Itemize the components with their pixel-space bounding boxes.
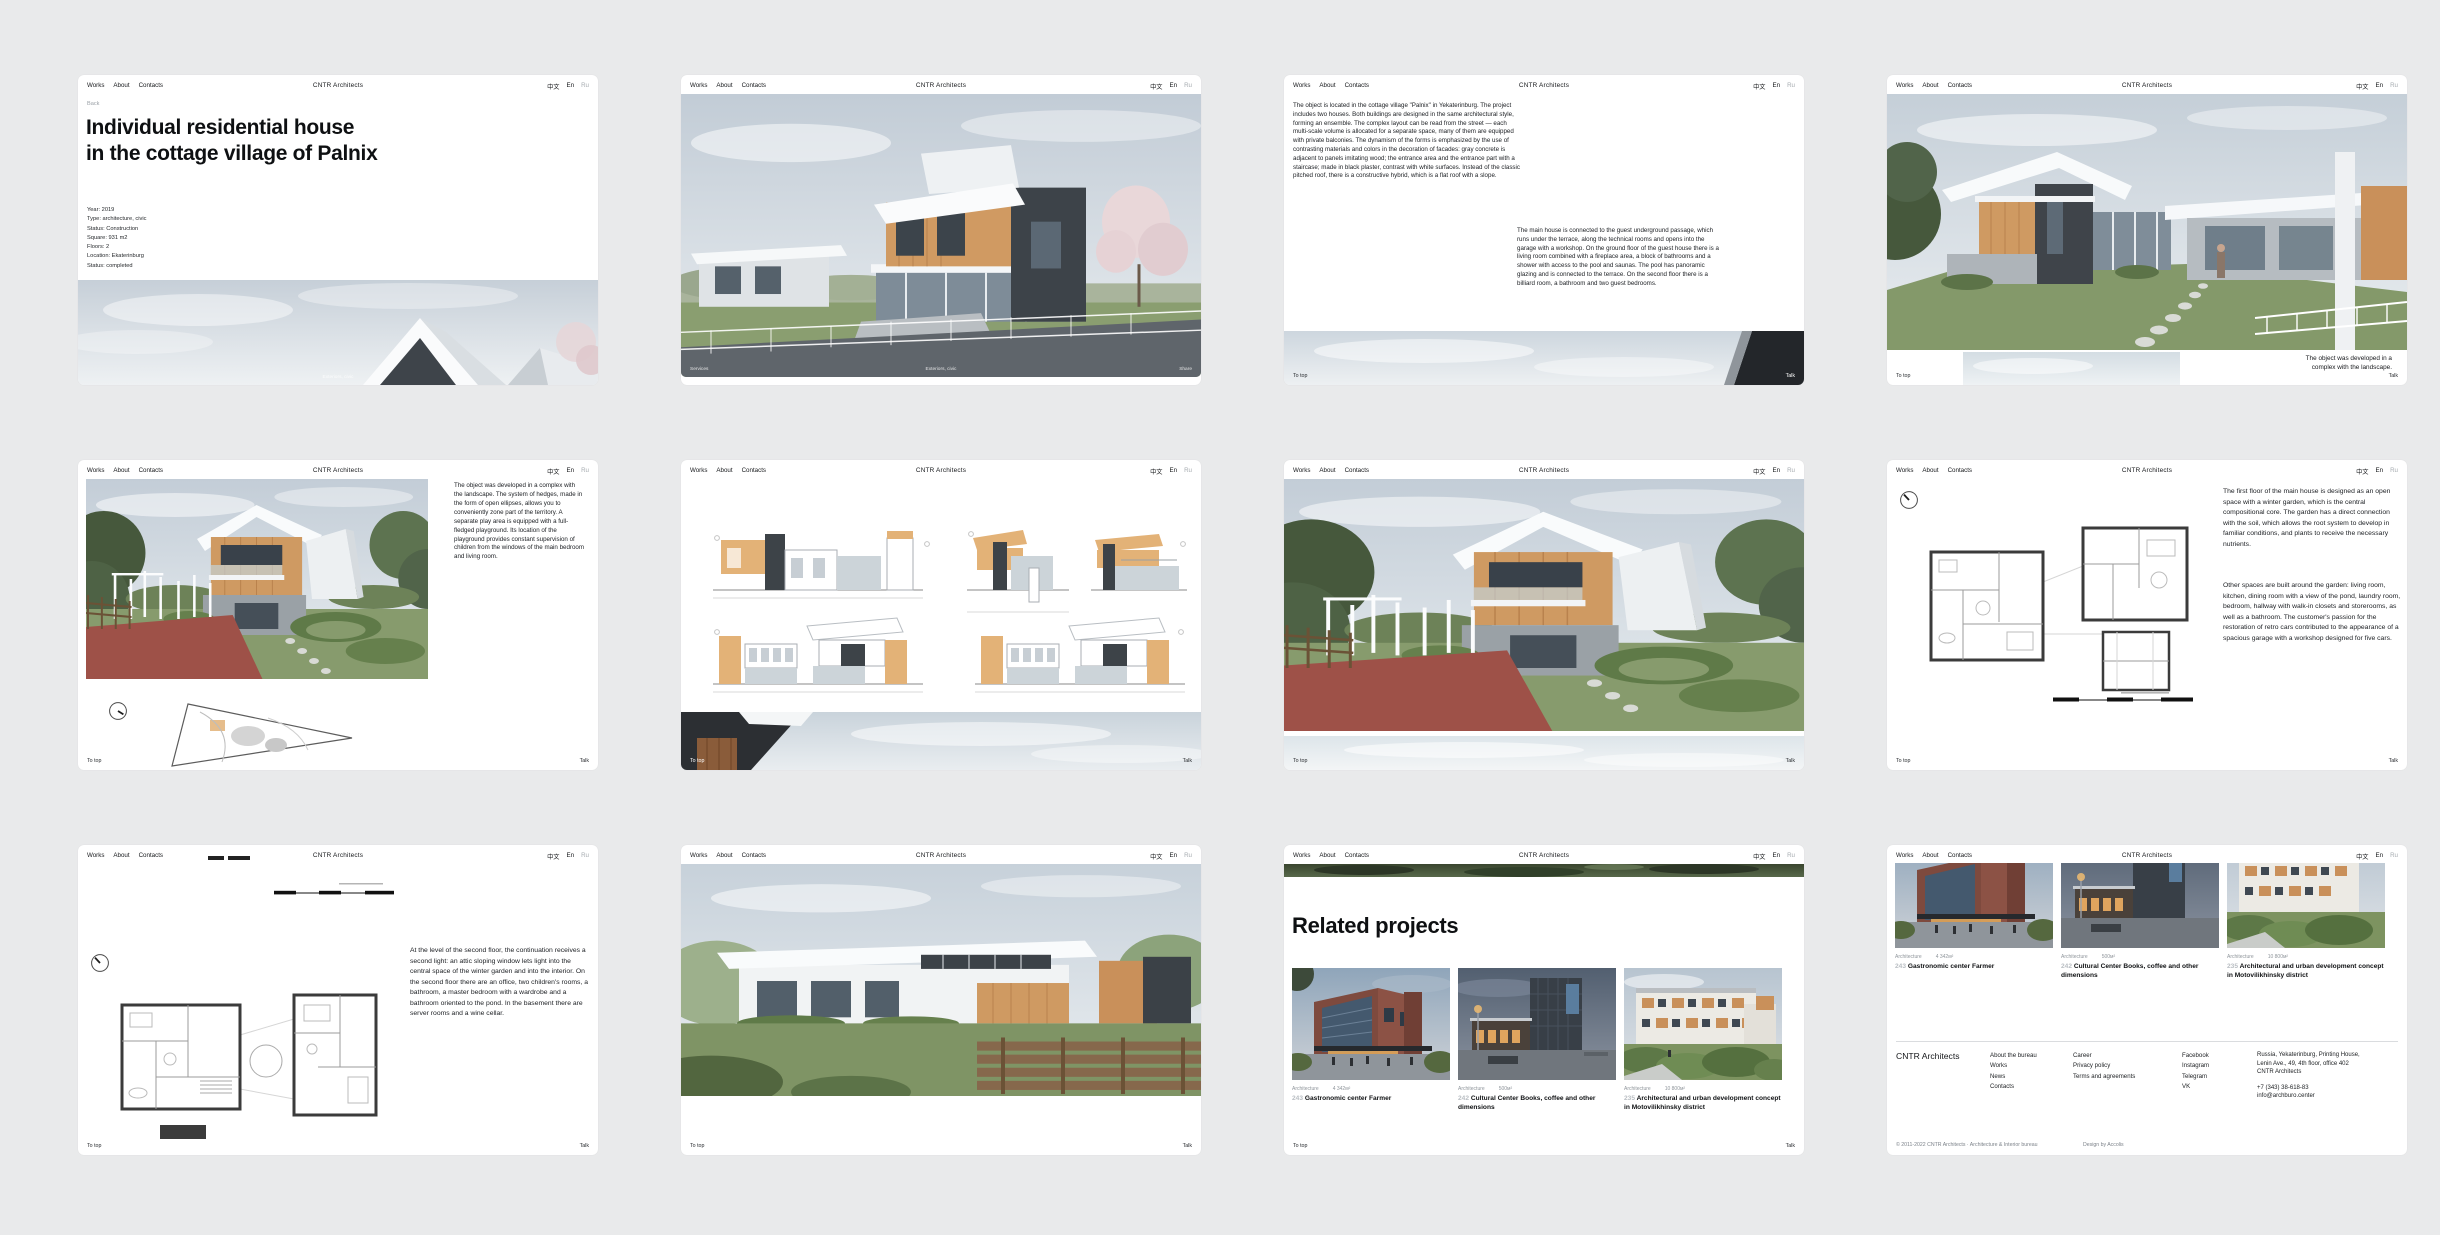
- meta-type: Type: architecture, civic: [87, 215, 146, 224]
- nav-link-works[interactable]: Works: [690, 82, 707, 89]
- lang-option-2[interactable]: Ru: [2390, 467, 2398, 476]
- lang-option-0[interactable]: 中文: [547, 82, 559, 91]
- site-nav: WorksAboutContactsCNTR Architects中文EnRu: [681, 845, 1201, 865]
- screen-garden-photo: WorksAboutContactsCNTR Architects中文EnRu: [681, 845, 1201, 1155]
- footer-link-terms[interactable]: Terms and agreements: [2073, 1072, 2135, 1082]
- to-top-link[interactable]: To top: [690, 758, 704, 764]
- to-top-link[interactable]: To top: [1293, 1143, 1307, 1149]
- site-nav: WorksAboutContactsCNTR Architects中文EnRu: [1284, 460, 1804, 480]
- meta-square: Square: 931 m2: [87, 234, 146, 243]
- lang-option-1[interactable]: En: [2376, 852, 2384, 861]
- nav-link-works[interactable]: Works: [1293, 82, 1310, 89]
- pagebar: To topTalk: [1293, 1143, 1795, 1149]
- talk-link[interactable]: Talk: [2389, 758, 2398, 764]
- address-line: CNTR Architects: [2257, 1068, 2399, 1077]
- talk-link[interactable]: Talk: [2389, 373, 2398, 379]
- card-number: 243: [1895, 963, 1906, 970]
- nav-links: WorksAboutContacts: [1293, 82, 1369, 89]
- related-card-meta: Architecture 500м²: [2061, 954, 2219, 960]
- meta-location: Location: Ekaterinburg: [87, 252, 146, 261]
- related-card-meta: Architecture 500м²: [1458, 1086, 1616, 1092]
- related-card-image: [2061, 863, 2219, 948]
- card-number: 242: [2061, 963, 2072, 970]
- nav-link-about[interactable]: About: [1319, 852, 1335, 859]
- card-area: 10 800м²: [2268, 954, 2288, 960]
- garden-image: [681, 864, 1201, 1096]
- courtyard-image: [1887, 94, 2407, 350]
- pagebar: To topTalk: [690, 758, 1192, 764]
- text-block-location: The object is located in the cottage vil…: [1293, 102, 1523, 181]
- talk-link[interactable]: Talk: [1786, 758, 1795, 764]
- language-switcher: 中文EnRu: [547, 852, 589, 861]
- card-category: Architecture: [2061, 954, 2088, 960]
- footer-social-column: Facebook Instagram Telegram VK: [2182, 1051, 2209, 1093]
- language-switcher: 中文EnRu: [1150, 82, 1192, 91]
- image-caption-overlay: Exteriors, civic: [926, 367, 957, 372]
- footer-phone[interactable]: +7 (343) 38-618-83: [2257, 1084, 2399, 1093]
- site-nav: WorksAboutContactsCNTR Architects中文EnRu: [78, 845, 598, 865]
- language-switcher: 中文EnRu: [547, 467, 589, 476]
- image-strip-trees: [1284, 864, 1804, 877]
- lang-option-0[interactable]: 中文: [1753, 467, 1765, 476]
- language-switcher: 中文EnRu: [1753, 852, 1795, 861]
- screen-second-floor-plan: WorksAboutContactsCNTR Architects中文EnRu: [78, 845, 598, 1155]
- language-switcher: 中文EnRu: [547, 82, 589, 91]
- to-top-link[interactable]: To top: [1896, 373, 1910, 379]
- lang-option-2[interactable]: Ru: [1787, 852, 1795, 861]
- nav-link-contacts[interactable]: Contacts: [1948, 82, 1972, 89]
- card-category: Architecture: [1895, 954, 1922, 960]
- lang-option-1[interactable]: En: [1773, 467, 1781, 476]
- card-category: Architecture: [1624, 1086, 1651, 1092]
- lang-option-2[interactable]: Ru: [1184, 467, 1192, 476]
- nav-link-works[interactable]: Works: [1896, 82, 1913, 89]
- lang-option-0[interactable]: 中文: [2356, 467, 2368, 476]
- related-card-meta: Architecture 10 800м²: [1624, 1086, 1782, 1092]
- scale-bar: [273, 881, 395, 899]
- card-category: Architecture: [1458, 1086, 1485, 1092]
- card-title-text: Cultural Center Books, coffee and other …: [2061, 963, 2198, 979]
- image-overlay-left[interactable]: Services: [690, 367, 708, 372]
- floor-plan-2-drawing: [108, 977, 398, 1147]
- lang-option-2[interactable]: Ru: [1184, 852, 1192, 861]
- nav-link-works[interactable]: Works: [1293, 467, 1310, 474]
- footer-nav-column: About the bureau Works News Contacts: [1990, 1051, 2037, 1093]
- card-area: 4 342м²: [1936, 954, 1954, 960]
- site-nav: WorksAboutContactsCNTR Architects中文EnRu: [78, 75, 598, 95]
- project-meta-list: Year: 2019 Type: architecture, civic Sta…: [87, 206, 146, 271]
- nav-link-contacts[interactable]: Contacts: [139, 467, 163, 474]
- site-nav: WorksAboutContactsCNTR Architects中文EnRu: [681, 460, 1201, 480]
- related-card-motovilikhinsky[interactable]: Architecture 10 800м² 235 Architectural …: [2227, 863, 2385, 981]
- lang-option-2[interactable]: Ru: [581, 82, 589, 91]
- image-caption: The object was developed in a complex wi…: [2284, 354, 2392, 372]
- nav-link-contacts[interactable]: Contacts: [1948, 852, 1972, 859]
- lang-option-0[interactable]: 中文: [1150, 467, 1162, 476]
- lang-option-0[interactable]: 中文: [547, 467, 559, 476]
- nav-links: WorksAboutContacts: [1896, 467, 1972, 474]
- screen-related-projects: WorksAboutContactsCNTR Architects中文EnRu …: [1284, 845, 1804, 1155]
- nav-link-contacts[interactable]: Contacts: [742, 82, 766, 89]
- project-title-line1: Individual residential house: [86, 115, 377, 141]
- nav-links: WorksAboutContacts: [690, 467, 766, 474]
- nav-link-about[interactable]: About: [1922, 852, 1938, 859]
- related-card-title[interactable]: 235 Architectural and urban development …: [1624, 1095, 1782, 1113]
- nav-links: WorksAboutContacts: [87, 852, 163, 859]
- footer-link-facebook[interactable]: Facebook: [2182, 1051, 2209, 1061]
- nav-link-works[interactable]: Works: [87, 467, 104, 474]
- card-number: 243: [1292, 1095, 1303, 1102]
- back-link[interactable]: Back: [87, 101, 99, 107]
- lang-option-1[interactable]: En: [1170, 852, 1178, 861]
- text-block-first-floor-2: Other spaces are built around the garden…: [2223, 581, 2401, 644]
- card-area: 500м²: [2102, 954, 2115, 960]
- footer-link-about[interactable]: About the bureau: [1990, 1051, 2037, 1061]
- site-nav: WorksAboutContactsCNTR Architects中文EnRu: [1887, 75, 2407, 95]
- nav-link-about[interactable]: About: [113, 82, 129, 89]
- language-switcher: 中文EnRu: [1150, 852, 1192, 861]
- text-block-first-floor-1: The first floor of the main house is des…: [2223, 487, 2401, 550]
- lang-option-2[interactable]: Ru: [581, 467, 589, 476]
- card-title-text: Cultural Center Books, coffee and other …: [1458, 1095, 1595, 1111]
- lang-option-0[interactable]: 中文: [547, 852, 559, 861]
- pagebar: To topTalk: [87, 758, 589, 764]
- related-card-meta: Architecture 4 342м²: [1292, 1086, 1450, 1092]
- playground-image: [86, 479, 428, 679]
- footer-link-telegram[interactable]: Telegram: [2182, 1072, 2209, 1082]
- footer-legal-column: Career Privacy policy Terms and agreemen…: [2073, 1051, 2135, 1082]
- north-arrow-icon: [90, 953, 110, 973]
- next-image-sliver: [1963, 352, 2180, 385]
- screen-description-text: WorksAboutContactsCNTR Architects中文EnRu …: [1284, 75, 1804, 385]
- text-block-guest-house: The main house is connected to the guest…: [1517, 227, 1725, 289]
- language-switcher: 中文EnRu: [2356, 82, 2398, 91]
- hero-image-top: Exteriors, civic: [78, 280, 598, 385]
- nav-link-works[interactable]: Works: [87, 82, 104, 89]
- meta-floors: Floors: 2: [87, 243, 146, 252]
- card-number: 235: [2227, 963, 2238, 970]
- image-caption-overlay: Exteriors, civic: [323, 375, 354, 380]
- footer-divider: [1896, 1041, 2398, 1042]
- pagebar: To topTalk: [1896, 758, 2398, 764]
- nav-link-contacts[interactable]: Contacts: [742, 467, 766, 474]
- nav-links: WorksAboutContacts: [87, 82, 163, 89]
- related-card-image: [1895, 863, 2053, 948]
- card-title-text: Architectural and urban development conc…: [1624, 1095, 1781, 1111]
- related-card-image: [1292, 968, 1450, 1080]
- to-top-link[interactable]: To top: [87, 1143, 101, 1149]
- footer-brand[interactable]: CNTR Architects: [1896, 1051, 1960, 1061]
- related-card-title[interactable]: 242 Cultural Center Books, coffee and ot…: [2061, 963, 2219, 981]
- share-link[interactable]: Share: [1179, 367, 1192, 372]
- related-card-title[interactable]: 243 Gastronomic center Farmer: [1895, 963, 2053, 972]
- lang-option-0[interactable]: 中文: [1150, 852, 1162, 861]
- to-top-link[interactable]: To top: [1293, 758, 1307, 764]
- lang-option-2[interactable]: Ru: [1787, 467, 1795, 476]
- lang-option-0[interactable]: 中文: [1753, 82, 1765, 91]
- nav-link-works[interactable]: Works: [1293, 852, 1310, 859]
- lang-option-2[interactable]: Ru: [2390, 82, 2398, 91]
- nav-link-contacts[interactable]: Contacts: [139, 852, 163, 859]
- nav-links: WorksAboutContacts: [690, 82, 766, 89]
- card-category: Architecture: [1292, 1086, 1319, 1092]
- nav-links: WorksAboutContacts: [1293, 852, 1369, 859]
- footer-link-news[interactable]: News: [1990, 1072, 2037, 1082]
- language-switcher: 中文EnRu: [2356, 852, 2398, 861]
- meta-status-2: Status: completed: [87, 262, 146, 271]
- lang-option-1[interactable]: En: [1773, 82, 1781, 91]
- nav-link-about[interactable]: About: [113, 467, 129, 474]
- language-switcher: 中文EnRu: [1753, 467, 1795, 476]
- meta-year: Year: 2019: [87, 206, 146, 215]
- to-top-link[interactable]: To top: [87, 758, 101, 764]
- nav-link-about[interactable]: About: [1922, 82, 1938, 89]
- to-top-link[interactable]: To top: [1896, 758, 1910, 764]
- nav-link-about[interactable]: About: [1922, 467, 1938, 474]
- nav-link-about[interactable]: About: [1319, 82, 1335, 89]
- nav-link-works[interactable]: Works: [690, 852, 707, 859]
- nav-link-about[interactable]: About: [716, 82, 732, 89]
- pagebar: To topTalk: [1896, 373, 2398, 379]
- screen-site-footer: WorksAboutContactsCNTR Architects中文EnRu …: [1887, 845, 2407, 1155]
- footer-address: Russia, Yekaterinburg, Printing House, L…: [2257, 1051, 2399, 1101]
- lang-option-2[interactable]: Ru: [1184, 82, 1192, 91]
- nav-link-contacts[interactable]: Contacts: [1345, 852, 1369, 859]
- language-switcher: 中文EnRu: [1150, 467, 1192, 476]
- footer-link-works[interactable]: Works: [1990, 1061, 2037, 1071]
- talk-link[interactable]: Talk: [580, 1143, 589, 1149]
- playground-image-wide: [1284, 479, 1804, 731]
- talk-link[interactable]: Talk: [580, 758, 589, 764]
- footer-link-instagram[interactable]: Instagram: [2182, 1061, 2209, 1071]
- nav-link-works[interactable]: Works: [690, 467, 707, 474]
- north-arrow-icon: [108, 701, 128, 721]
- card-area: 500м²: [1499, 1086, 1512, 1092]
- footer-link-privacy[interactable]: Privacy policy: [2073, 1061, 2135, 1071]
- nav-links: WorksAboutContacts: [1896, 82, 1972, 89]
- north-arrow-icon: [1899, 490, 1919, 510]
- lang-option-0[interactable]: 中文: [2356, 82, 2368, 91]
- footer-link-vk[interactable]: VK: [2182, 1082, 2209, 1092]
- site-nav: WorksAboutContactsCNTR Architects中文EnRu: [681, 75, 1201, 95]
- project-title: Individual residential house in the cott…: [86, 115, 377, 168]
- pagebar: To topTalk: [1293, 373, 1795, 379]
- nav-links: WorksAboutContacts: [1293, 467, 1369, 474]
- address-line: Lenin Ave., 49, 4th floor, office 402: [2257, 1060, 2399, 1069]
- nav-link-contacts[interactable]: Contacts: [139, 82, 163, 89]
- card-number: 235: [1624, 1095, 1635, 1102]
- footer-copyright: © 2011-2022 CNTR Architects · Architectu…: [1896, 1142, 2038, 1148]
- related-card-farmer[interactable]: Architecture 4 342м² 243 Gastronomic cen…: [1895, 863, 2053, 972]
- pagebar: To topTalk: [87, 1143, 589, 1149]
- site-nav: WorksAboutContactsCNTR Architects中文EnRu: [1284, 75, 1804, 95]
- to-top-link[interactable]: To top: [1293, 373, 1307, 379]
- related-card-books[interactable]: Architecture 500м² 242 Cultural Center B…: [1458, 968, 1616, 1113]
- lang-option-1[interactable]: En: [2376, 467, 2384, 476]
- nav-link-works[interactable]: Works: [1896, 852, 1913, 859]
- lang-option-1[interactable]: En: [1170, 467, 1178, 476]
- nav-link-contacts[interactable]: Contacts: [1345, 467, 1369, 474]
- footer-link-contacts[interactable]: Contacts: [1990, 1082, 2037, 1092]
- nav-link-about[interactable]: About: [716, 467, 732, 474]
- card-area: 10 800м²: [1665, 1086, 1685, 1092]
- nav-link-works[interactable]: Works: [1896, 467, 1913, 474]
- screen-first-floor-plan: WorksAboutContactsCNTR Architects中文EnRu: [1887, 460, 2407, 770]
- lang-option-2[interactable]: Ru: [581, 852, 589, 861]
- lang-option-1[interactable]: En: [1773, 852, 1781, 861]
- lang-option-2[interactable]: Ru: [1787, 82, 1795, 91]
- site-nav: WorksAboutContactsCNTR Architects中文EnRu: [78, 460, 598, 480]
- project-title-line2: in the cottage village of Palnix: [86, 141, 377, 167]
- nav-links: WorksAboutContacts: [1896, 852, 1972, 859]
- language-switcher: 中文EnRu: [2356, 467, 2398, 476]
- nav-link-about[interactable]: About: [1319, 467, 1335, 474]
- card-title-text: Architectural and urban development conc…: [2227, 963, 2384, 979]
- screen-landscape-text: WorksAboutContactsCNTR Architects中文EnRu: [78, 460, 598, 770]
- lang-option-1[interactable]: En: [567, 467, 575, 476]
- lang-option-1[interactable]: En: [1170, 82, 1178, 91]
- nav-link-contacts[interactable]: Contacts: [1345, 82, 1369, 89]
- screen-playground-photo: WorksAboutContactsCNTR Architects中文EnRu: [1284, 460, 1804, 770]
- related-card-books[interactable]: Architecture 500м² 242 Cultural Center B…: [2061, 863, 2219, 981]
- related-card-motovilikhinsky[interactable]: Architecture 10 800м² 235 Architectural …: [1624, 968, 1782, 1113]
- site-nav: WorksAboutContactsCNTR Architects中文EnRu: [1887, 845, 2407, 865]
- related-card-meta: Architecture 10 800м²: [2227, 954, 2385, 960]
- related-card-image: [1458, 968, 1616, 1080]
- nav-link-contacts[interactable]: Contacts: [1948, 467, 1972, 474]
- card-title-text: Gastronomic center Farmer: [1908, 963, 1994, 970]
- talk-link[interactable]: Talk: [1183, 758, 1192, 764]
- lang-option-1[interactable]: En: [567, 82, 575, 91]
- meta-status: Status: Construction: [87, 225, 146, 234]
- lang-option-0[interactable]: 中文: [1753, 852, 1765, 861]
- talk-link[interactable]: Talk: [1786, 373, 1795, 379]
- card-title-text: Gastronomic center Farmer: [1305, 1095, 1391, 1102]
- lang-option-1[interactable]: En: [567, 852, 575, 861]
- screen-hero-photo: WorksAboutContactsCNTR Architects中文EnRu: [681, 75, 1201, 385]
- talk-link[interactable]: Talk: [1183, 1143, 1192, 1149]
- pagebar: To topTalk: [690, 1143, 1192, 1149]
- related-card-title[interactable]: 242 Cultural Center Books, coffee and ot…: [1458, 1095, 1616, 1113]
- lang-option-2[interactable]: Ru: [2390, 852, 2398, 861]
- lang-option-1[interactable]: En: [2376, 82, 2384, 91]
- screen-elevations: WorksAboutContactsCNTR Architects中文EnRu: [681, 460, 1201, 770]
- elevation-drawings: [691, 494, 1191, 706]
- lang-option-0[interactable]: 中文: [2356, 852, 2368, 861]
- talk-link[interactable]: Talk: [1786, 1143, 1795, 1149]
- sky-strip-image: [1284, 736, 1804, 770]
- screen-project-cover: WorksAboutContactsCNTR Architects中文EnRu …: [78, 75, 598, 385]
- card-number: 242: [1458, 1095, 1469, 1102]
- nav-link-about[interactable]: About: [113, 852, 129, 859]
- to-top-link[interactable]: To top: [690, 1143, 704, 1149]
- related-card-title[interactable]: 243 Gastronomic center Farmer: [1292, 1095, 1450, 1104]
- nav-link-about[interactable]: About: [716, 852, 732, 859]
- footer-design-credit[interactable]: Design by Accolis: [2083, 1142, 2124, 1148]
- language-switcher: 中文EnRu: [1753, 82, 1795, 91]
- floor-plan-1-drawing: [1903, 512, 2215, 704]
- lang-option-0[interactable]: 中文: [1150, 82, 1162, 91]
- address-line: Russia, Yekaterinburg, Printing House,: [2257, 1051, 2399, 1060]
- related-card-image: [1624, 968, 1782, 1080]
- footer-email[interactable]: info@archburo.center: [2257, 1092, 2399, 1101]
- card-category: Architecture: [2227, 954, 2254, 960]
- related-card-meta: Architecture 4 342м²: [1895, 954, 2053, 960]
- related-heading: Related projects: [1292, 913, 1458, 939]
- text-block-landscape: The object was developed in a complex wi…: [454, 482, 584, 562]
- site-nav: WorksAboutContactsCNTR Architects中文EnRu: [1284, 845, 1804, 865]
- related-card-farmer[interactable]: Architecture 4 342м² 243 Gastronomic cen…: [1292, 968, 1450, 1104]
- nav-links: WorksAboutContacts: [87, 467, 163, 474]
- nav-link-contacts[interactable]: Contacts: [742, 852, 766, 859]
- related-card-image: [2227, 863, 2385, 948]
- pagebar: To topTalk: [1293, 758, 1795, 764]
- screen-courtyard-photo: WorksAboutContactsCNTR Architects中文EnRu: [1887, 75, 2407, 385]
- footer-link-career[interactable]: Career: [2073, 1051, 2135, 1061]
- hero-image-full: Services Exteriors, civic Share: [681, 94, 1201, 377]
- text-block-second-floor: At the level of the second floor, the co…: [410, 946, 590, 1020]
- related-card-title[interactable]: 235 Architectural and urban development …: [2227, 963, 2385, 981]
- nav-links: WorksAboutContacts: [690, 852, 766, 859]
- site-nav: WorksAboutContactsCNTR Architects中文EnRu: [1887, 460, 2407, 480]
- card-area: 4 342м²: [1333, 1086, 1351, 1092]
- nav-link-works[interactable]: Works: [87, 852, 104, 859]
